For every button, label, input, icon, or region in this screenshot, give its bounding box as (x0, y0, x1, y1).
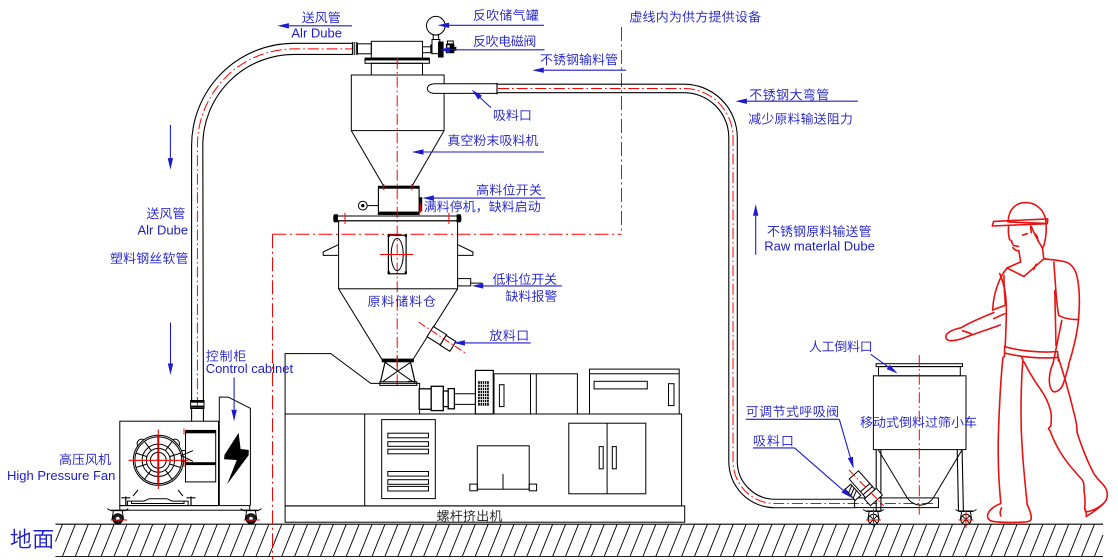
svg-text:Raw materlal Dube: Raw materlal Dube (764, 239, 875, 254)
svg-text:Alr Dube: Alr Dube (138, 223, 189, 238)
svg-text:Alr Dube: Alr Dube (291, 25, 342, 40)
svg-text:High Pressure Fan: High Pressure Fan (7, 468, 115, 483)
svg-text:Control cablnet: Control cablnet (206, 361, 294, 376)
